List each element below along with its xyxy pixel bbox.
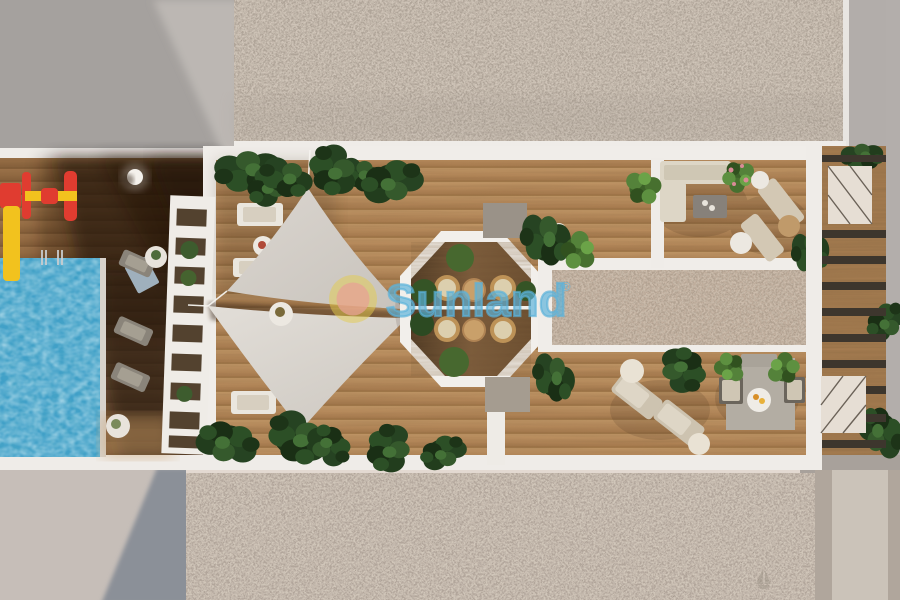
svg-text:®: ® xyxy=(561,279,571,294)
svg-text:Sunland: Sunland xyxy=(386,275,567,326)
